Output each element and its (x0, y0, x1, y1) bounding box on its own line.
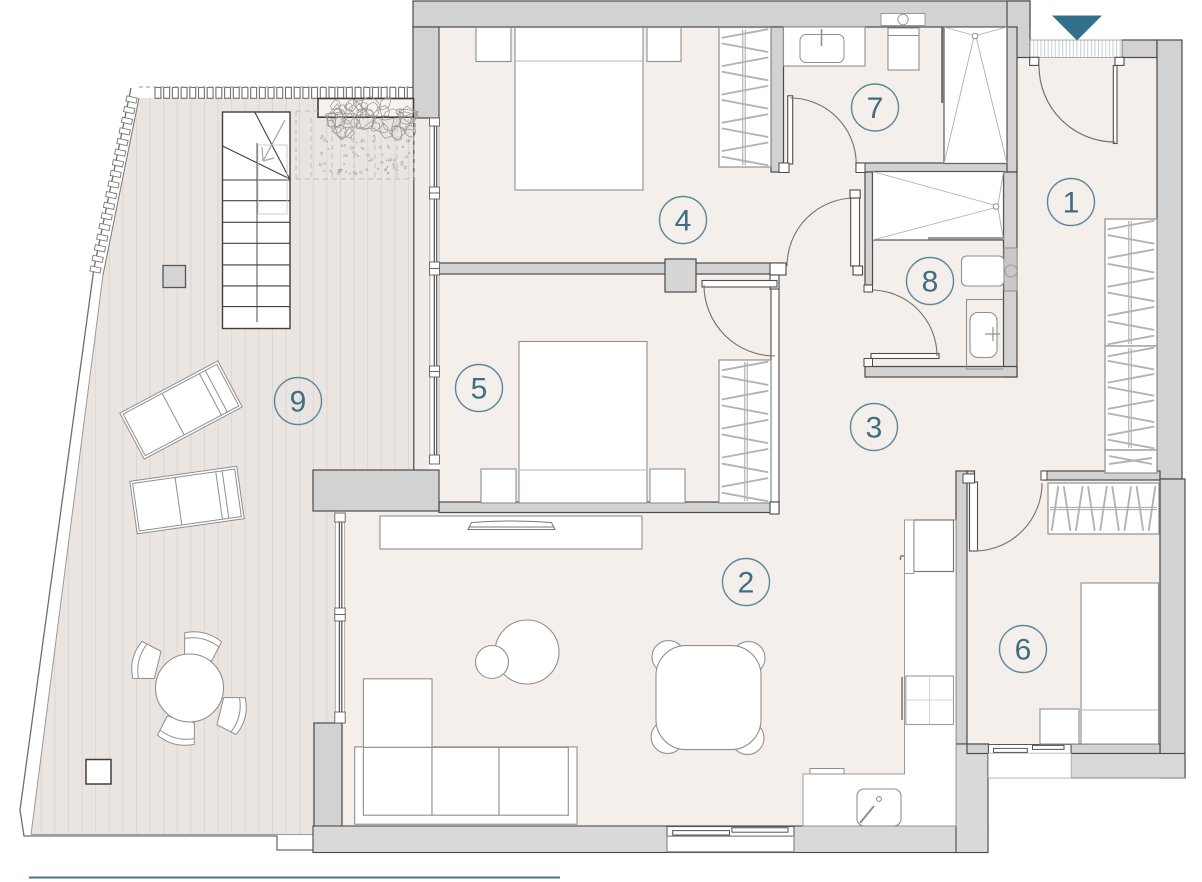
svg-text:2: 2 (738, 567, 755, 600)
svg-text:6: 6 (1015, 634, 1032, 667)
svg-text:7: 7 (867, 92, 884, 125)
svg-text:8: 8 (922, 266, 939, 299)
svg-text:3: 3 (866, 412, 883, 445)
svg-text:1: 1 (1063, 187, 1080, 220)
svg-text:5: 5 (471, 373, 488, 406)
svg-text:4: 4 (675, 205, 692, 238)
svg-text:9: 9 (290, 386, 307, 419)
